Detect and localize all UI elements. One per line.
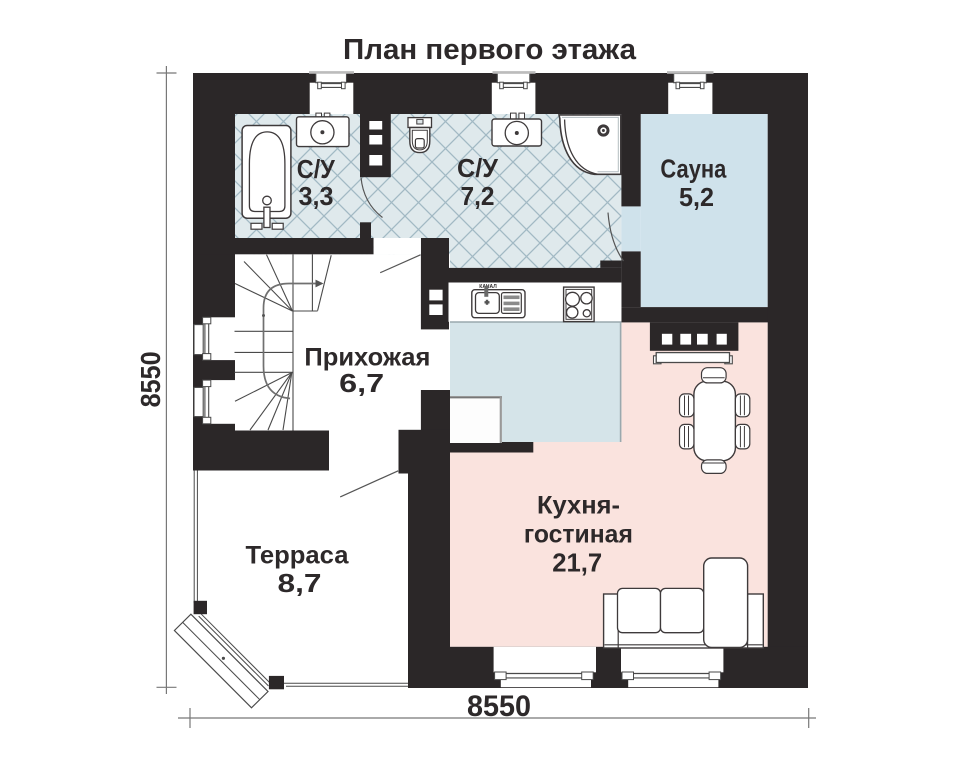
svg-text:С/У: С/У (297, 154, 336, 184)
svg-text:8550: 8550 (467, 690, 531, 723)
svg-text:Сауна: Сауна (660, 154, 726, 184)
svg-text:С/У: С/У (457, 153, 499, 183)
svg-text:Кухня-: Кухня- (537, 492, 620, 520)
svg-text:8,7: 8,7 (278, 568, 322, 598)
svg-text:6,7: 6,7 (339, 368, 384, 398)
svg-text:гостиная: гостиная (524, 521, 633, 549)
svg-text:8550: 8550 (135, 351, 166, 407)
svg-text:7,2: 7,2 (461, 181, 495, 211)
svg-text:Терраса: Терраса (246, 542, 350, 570)
svg-text:5,2: 5,2 (679, 182, 714, 212)
svg-text:3,3: 3,3 (299, 181, 334, 211)
svg-text:21,7: 21,7 (552, 548, 602, 578)
svg-text:План первого этажа: План первого этажа (343, 34, 637, 66)
